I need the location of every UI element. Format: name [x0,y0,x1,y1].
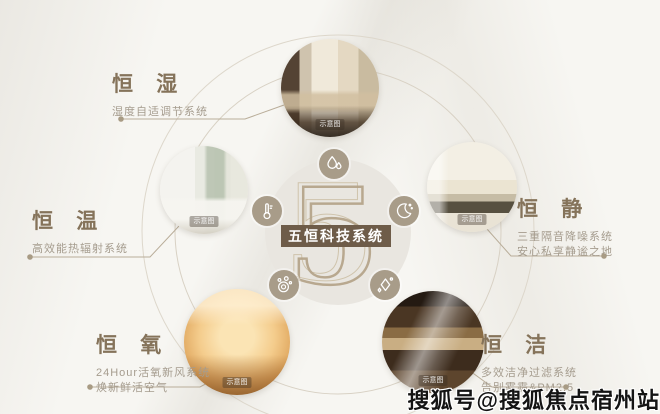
label-desc-line1: 24Hour活氧新风系统 [96,366,210,381]
label-desc: 高效能热辐射系统 [32,242,128,257]
label-desc: 24Hour活氧新风系统 焕新鲜活空气 [96,366,210,396]
label-title: 恒 温 [32,205,128,235]
photo-caption: 示意图 [458,214,487,225]
label-desc: 三重隔音降噪系统 安心私享静谧之地 [517,230,613,260]
label-constant-quiet: 恒 静 三重隔音降噪系统 安心私享静谧之地 [517,193,613,260]
photo-living-room-humidity: 示意图 [281,39,379,137]
sohu-watermark: 搜狐号@搜狐焦点宿州站 [408,383,660,414]
five-constant-system-infographic: 5 5 五恒科技系统 [0,0,660,414]
label-title: 恒 洁 [481,329,577,359]
label-constant-oxygen: 恒 氧 24Hour活氧新风系统 焕新鲜活空气 [96,329,210,396]
label-desc-line1: 三重隔音降噪系统 [517,230,613,245]
photo-bedroom-clean: 示意图 [382,291,484,393]
oxygen-icon [269,270,299,300]
system-title-banner: 五恒科技系统 [281,225,391,247]
photo-caption: 示意图 [316,119,345,130]
label-desc-line2: 安心私享静谧之地 [517,245,613,260]
label-desc: 湿度自适调节系统 [112,105,208,120]
label-title: 恒 湿 [112,68,208,98]
label-desc-line1: 多效洁净过滤系统 [481,366,577,381]
dot-hengyang [87,384,93,390]
photo-caption: 示意图 [223,377,252,388]
label-title: 恒 静 [517,193,613,223]
water-drop-icon [319,149,349,179]
photo-caption: 示意图 [190,216,219,227]
moon-icon [389,196,419,226]
label-constant-temperature: 恒 温 高效能热辐射系统 [32,205,128,257]
sparkle-icon [370,270,400,300]
label-constant-humidity: 恒 湿 湿度自适调节系统 [112,68,208,120]
label-desc-line2: 焕新鲜活空气 [96,381,210,396]
photo-bedroom-quiet: 示意图 [427,142,517,232]
label-title: 恒 氧 [96,329,210,359]
thermometer-icon [252,196,282,226]
photo-bedroom-temperature: 示意图 [160,146,248,234]
